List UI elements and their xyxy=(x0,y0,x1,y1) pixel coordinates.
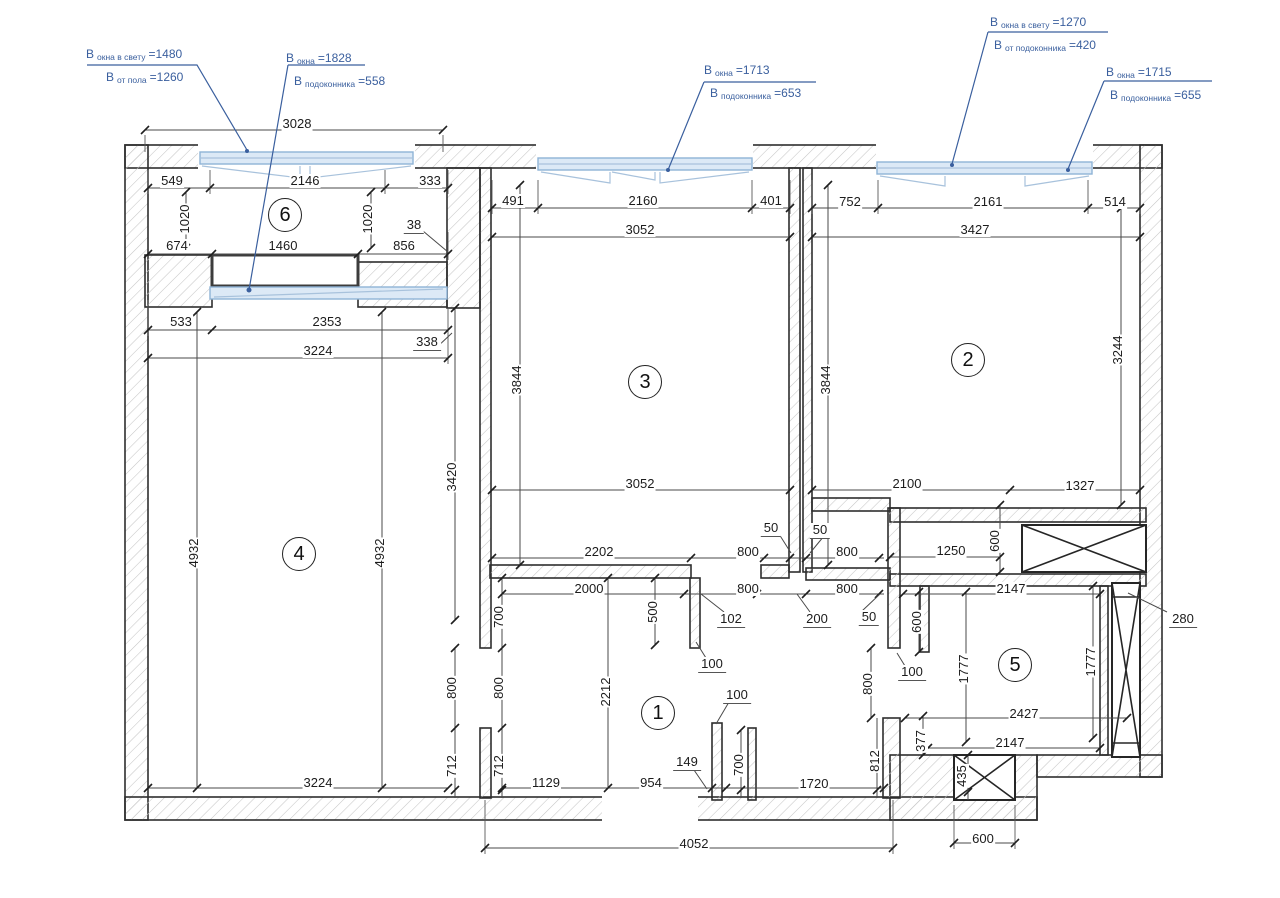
dimension-label: 700 xyxy=(492,605,506,629)
dimension-label: 954 xyxy=(639,776,663,790)
balcony-door-block xyxy=(212,255,358,286)
dimension-label: 1460 xyxy=(268,239,299,253)
dimension-label: 2353 xyxy=(312,315,343,329)
dimension-label: 712 xyxy=(445,754,459,778)
room-number-badge: 5 xyxy=(998,648,1032,682)
inner-window xyxy=(210,287,447,299)
dimension-label: 1777 xyxy=(1084,647,1098,678)
dimension-label: 2160 xyxy=(628,194,659,208)
dimension-label: 856 xyxy=(392,239,416,253)
dimension-label: 4932 xyxy=(373,538,387,569)
dimension-label: 3224 xyxy=(303,776,334,790)
dimension-label: 600 xyxy=(971,832,995,846)
window-annotation: Вокна=1713 Вподоконника=653 xyxy=(704,60,801,106)
dimension-label: 100 xyxy=(898,665,926,681)
annotation-line-2: Вподоконника=653 xyxy=(704,83,801,106)
annotation-line-2: Вподоконника=558 xyxy=(286,71,385,94)
dimension-label: 1020 xyxy=(178,204,192,235)
dimension-label: 1327 xyxy=(1065,479,1096,493)
dimension-label: 800 xyxy=(835,582,859,596)
dimension-label: 401 xyxy=(759,194,783,208)
dimension-label: 1777 xyxy=(957,654,971,685)
dimension-label: 674 xyxy=(165,239,189,253)
dimension-label: 2212 xyxy=(599,677,613,708)
dimension-label: 800 xyxy=(492,676,506,700)
dimension-label: 1720 xyxy=(799,777,830,791)
room2-window xyxy=(877,162,1092,186)
dimension-label: 50 xyxy=(859,610,879,626)
room-number-badge: 4 xyxy=(282,537,316,571)
dimension-label: 549 xyxy=(160,174,184,188)
annotation-line-1: Вокна=1828 xyxy=(286,48,385,71)
dimension-label: 338 xyxy=(413,335,441,351)
dimension-label: 712 xyxy=(492,754,506,778)
annotation-line-1: Вокна=1715 xyxy=(1106,62,1201,85)
dimension-label: 491 xyxy=(501,194,525,208)
dimension-label: 3420 xyxy=(445,462,459,493)
room-number-badge: 2 xyxy=(951,343,985,377)
dimension-label: 1250 xyxy=(936,544,967,558)
floorplan-canvas: 3028549214633310201020386741460856533235… xyxy=(0,0,1280,898)
dimension-label: 280 xyxy=(1169,612,1197,628)
window-annotation: Вокна в свету=1270 Вот подоконника=420 xyxy=(990,12,1096,58)
dimension-label: 38 xyxy=(404,218,424,234)
annotation-line-2: Вот пола=1260 xyxy=(86,67,183,90)
dimension-label: 3052 xyxy=(625,477,656,491)
shaft-tall xyxy=(1112,583,1140,757)
window-annotation: Вокна в свету=1480 Вот пола=1260 xyxy=(86,44,183,90)
dimension-label: 3244 xyxy=(1111,335,1125,366)
dimension-label: 514 xyxy=(1103,195,1127,209)
dimension-label: 3427 xyxy=(960,223,991,237)
annotation-line-1: Вокна в свету=1480 xyxy=(86,44,183,67)
dimension-label: 800 xyxy=(736,545,760,559)
window-annotation: Вокна=1715 Вподоконника=655 xyxy=(1106,62,1201,108)
room-number-badge: 3 xyxy=(628,365,662,399)
dimension-label: 333 xyxy=(418,174,442,188)
dimension-label: 812 xyxy=(868,749,882,773)
dimension-label: 500 xyxy=(646,600,660,624)
dimension-label: 600 xyxy=(910,610,924,634)
window-annotation: Вокна=1828 Вподоконника=558 xyxy=(286,48,385,94)
room-number-badge: 6 xyxy=(268,198,302,232)
shaft-horizontal xyxy=(1022,525,1146,572)
dimension-label: 102 xyxy=(717,612,745,628)
dimension-label: 3844 xyxy=(510,365,524,396)
dimension-label: 377 xyxy=(914,729,928,753)
dimension-label: 2147 xyxy=(995,736,1026,750)
dimension-label: 800 xyxy=(445,676,459,700)
annotation-line-1: Вокна=1713 xyxy=(704,60,801,83)
dimension-label: 100 xyxy=(698,657,726,673)
dimension-label: 1129 xyxy=(531,776,561,790)
dimension-label: 2000 xyxy=(574,582,605,596)
dimension-label: 2161 xyxy=(973,195,1004,209)
dimension-label: 533 xyxy=(169,315,193,329)
annotation-line-2: Вот подоконника=420 xyxy=(990,35,1096,58)
dimension-label: 1020 xyxy=(361,204,375,235)
dimension-label: 2146 xyxy=(290,174,321,188)
dimension-label: 800 xyxy=(861,672,875,696)
dimension-label: 3028 xyxy=(282,117,313,131)
dimension-label: 2147 xyxy=(996,582,1027,596)
dimension-label: 200 xyxy=(803,612,831,628)
dimension-label: 3224 xyxy=(303,344,334,358)
dimension-label: 4932 xyxy=(187,538,201,569)
dimension-label: 435 xyxy=(955,764,969,788)
room-number-badge: 1 xyxy=(641,696,675,730)
dimension-label: 2202 xyxy=(584,545,615,559)
dimension-label: 3844 xyxy=(819,365,833,396)
dimension-label: 600 xyxy=(988,529,1002,553)
dimension-label: 800 xyxy=(835,545,859,559)
floorplan-drawing xyxy=(0,0,1280,898)
dimension-label: 100 xyxy=(723,688,751,704)
dimension-label: 2427 xyxy=(1009,707,1040,721)
dimension-label: 752 xyxy=(838,195,862,209)
dimension-label: 700 xyxy=(732,753,746,777)
dimension-label: 149 xyxy=(673,755,701,771)
dimension-label: 50 xyxy=(761,521,781,537)
dimension-label: 2100 xyxy=(892,477,923,491)
dimension-label: 800 xyxy=(736,582,760,596)
dimension-label: 3052 xyxy=(625,223,656,237)
room3-window xyxy=(538,158,752,183)
annotation-line-1: Вокна в свету=1270 xyxy=(990,12,1096,35)
annotation-line-2: Вподоконника=655 xyxy=(1106,85,1201,108)
dimension-label: 50 xyxy=(810,523,830,539)
dimension-label: 4052 xyxy=(679,837,710,851)
